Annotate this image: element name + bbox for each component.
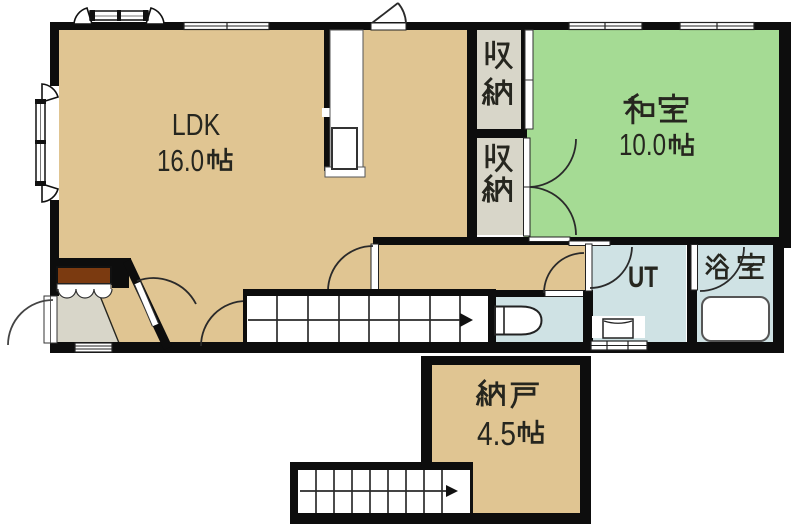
svg-text:16.0: 16.0 xyxy=(157,143,204,178)
svg-text:4.5: 4.5 xyxy=(477,416,516,453)
svg-text:UT: UT xyxy=(628,260,658,294)
svg-text:LDK: LDK xyxy=(172,107,220,141)
svg-text:10.0: 10.0 xyxy=(619,127,666,162)
